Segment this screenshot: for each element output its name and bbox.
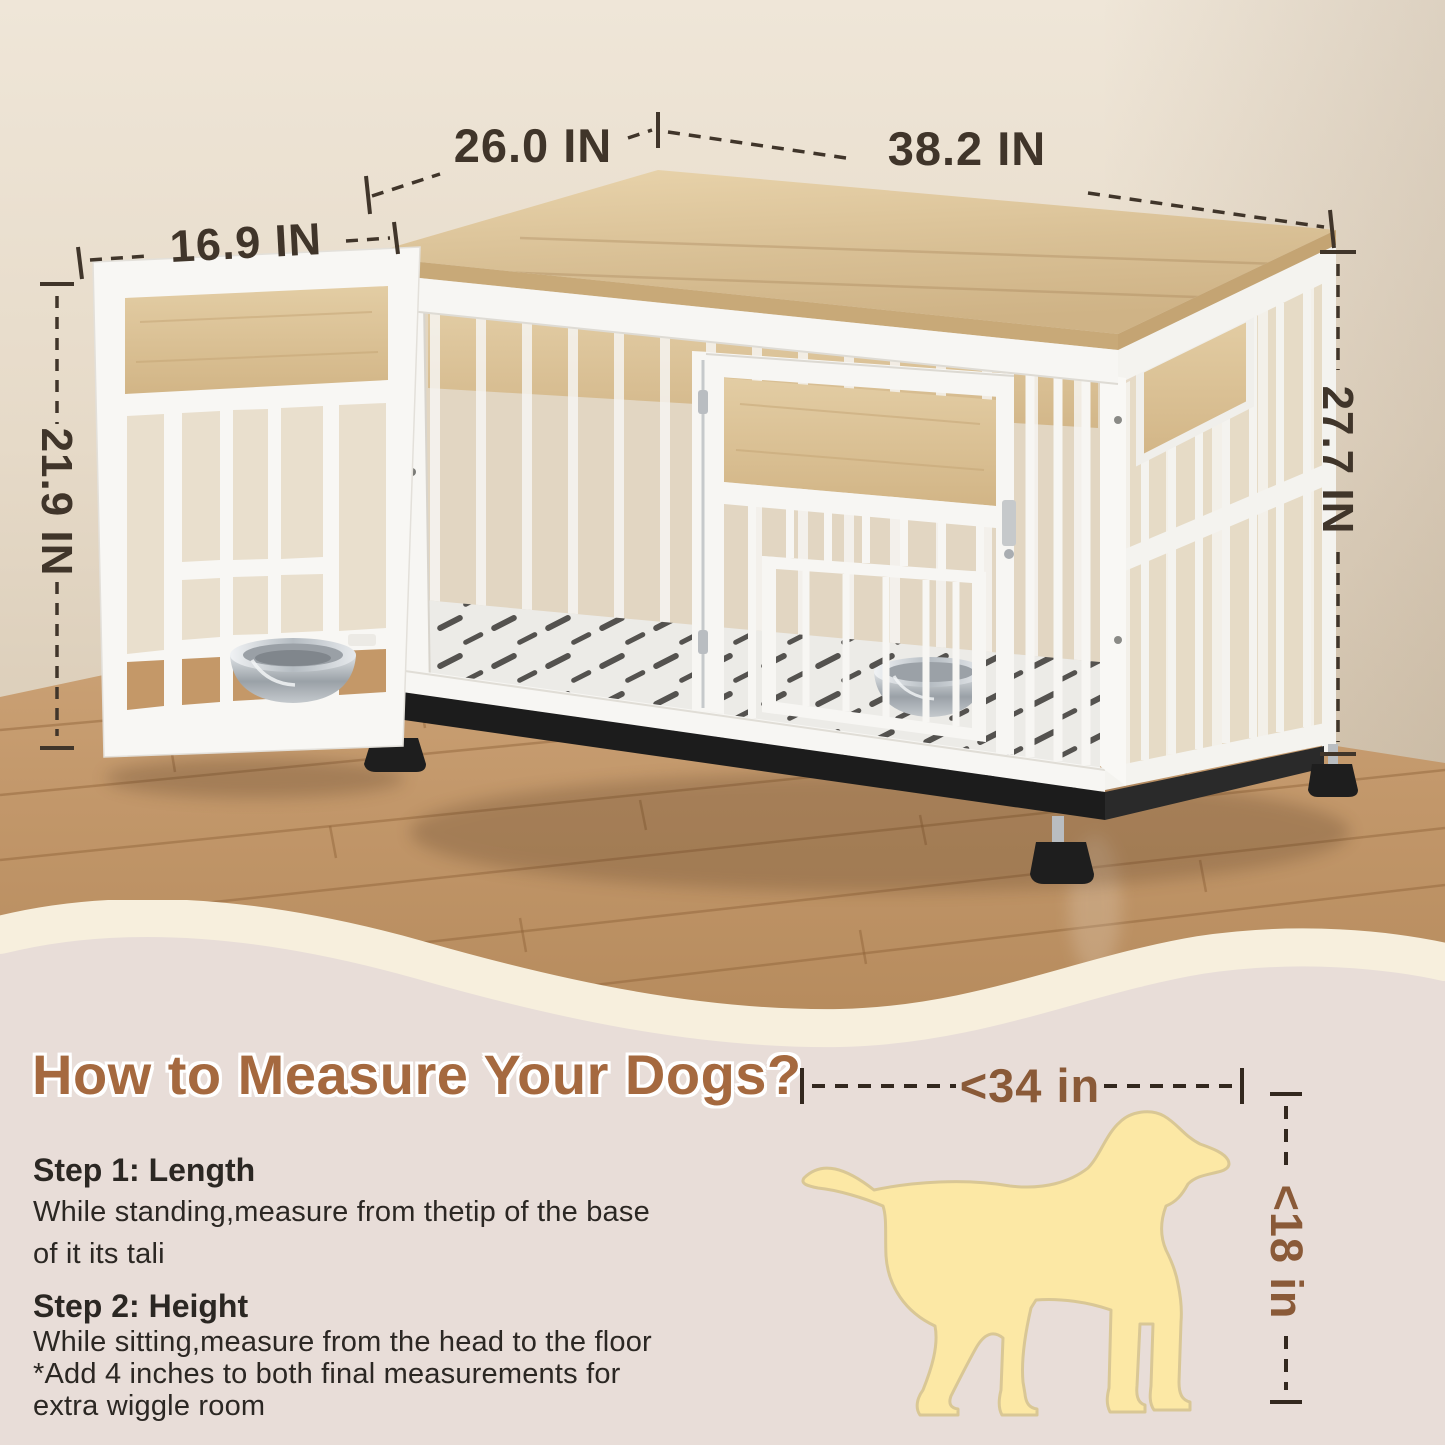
hinge-bottom xyxy=(698,630,708,654)
foot-front-right xyxy=(1030,842,1094,884)
dim-label-dog-length: <34 in xyxy=(960,1059,1101,1112)
step-1-line-1: While standing,measure from thetip of th… xyxy=(33,1196,650,1229)
door-shadow xyxy=(105,758,405,798)
hinge-top xyxy=(698,390,708,414)
open-door xyxy=(93,247,420,757)
guide-heading: How to Measure Your Dogs? xyxy=(32,1042,802,1107)
dim-label-crate-height: 27.7 IN xyxy=(1313,386,1362,535)
product-dimension-infographic: 26.0 IN 38.2 IN 16.9 IN 21.9 IN xyxy=(0,0,1445,1445)
step-2-line-3: extra wiggle room xyxy=(33,1390,265,1423)
dim-label-door-width: 16.9 IN xyxy=(169,213,324,272)
dim-label-door-height: 21.9 IN xyxy=(32,428,81,577)
dim-dog-length: <34 in xyxy=(802,1059,1242,1112)
dim-label-top-width: 38.2 IN xyxy=(888,122,1047,175)
step-2-title: Step 2: Height xyxy=(33,1288,248,1325)
dim-label-top-depth: 26.0 IN xyxy=(454,119,613,172)
product-photo: 26.0 IN 38.2 IN 16.9 IN 21.9 IN xyxy=(0,0,1445,1040)
foot-back-right xyxy=(1308,764,1358,797)
dim-label-dog-height: <18 in xyxy=(1261,1185,1312,1320)
front-right-post xyxy=(1100,374,1126,786)
open-door-wood-panel xyxy=(125,286,388,394)
step-1-title: Step 1: Length xyxy=(33,1152,255,1189)
step-2-line-2: *Add 4 inches to both final measurements… xyxy=(33,1358,621,1391)
step-2-line-1: While sitting,measure from the head to t… xyxy=(33,1326,652,1359)
dim-dog-height: <18 in xyxy=(1261,1094,1312,1402)
dog-measure-graphic: <34 in <18 in xyxy=(780,1040,1345,1430)
door-latch xyxy=(1002,500,1016,546)
step-1-line-2: of it its tali xyxy=(33,1238,165,1271)
dog-silhouette xyxy=(803,1112,1229,1415)
